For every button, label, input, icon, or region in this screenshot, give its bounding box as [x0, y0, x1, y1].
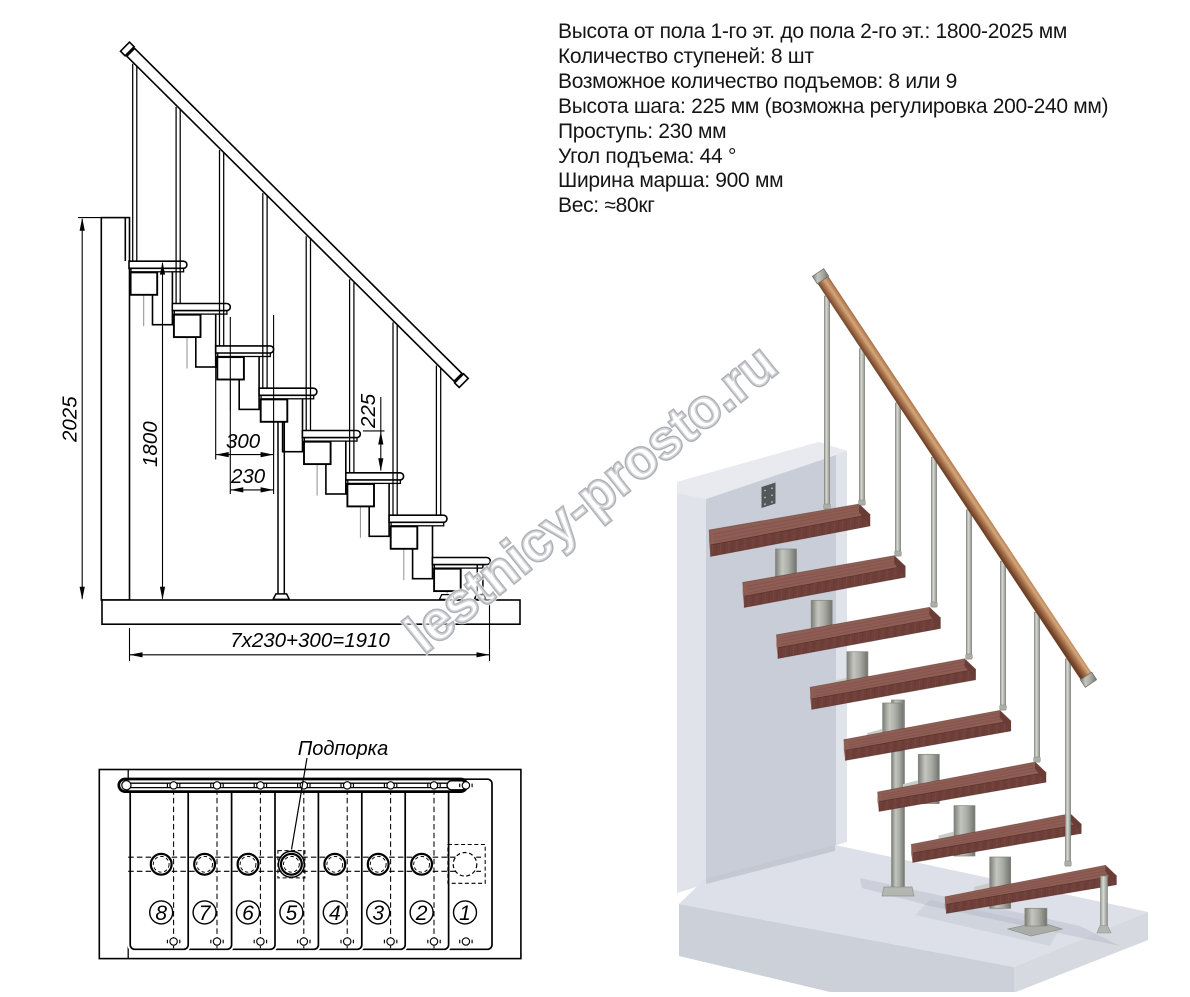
svg-text:3: 3 [372, 902, 384, 925]
svg-text:7: 7 [199, 902, 212, 925]
svg-text:6: 6 [242, 902, 254, 925]
svg-text:4: 4 [329, 902, 341, 925]
svg-text:2025: 2025 [59, 396, 82, 443]
svg-text:1800: 1800 [139, 421, 162, 467]
svg-text:2: 2 [415, 902, 428, 925]
svg-text:5: 5 [286, 902, 298, 925]
svg-text:8: 8 [155, 902, 167, 925]
svg-text:300: 300 [226, 430, 261, 453]
svg-text:225: 225 [357, 393, 380, 429]
svg-text:7x230+300=1910: 7x230+300=1910 [230, 629, 390, 652]
svg-text:230: 230 [230, 465, 266, 488]
svg-text:Подпорка: Подпорка [298, 738, 389, 760]
svg-text:1: 1 [459, 902, 471, 925]
